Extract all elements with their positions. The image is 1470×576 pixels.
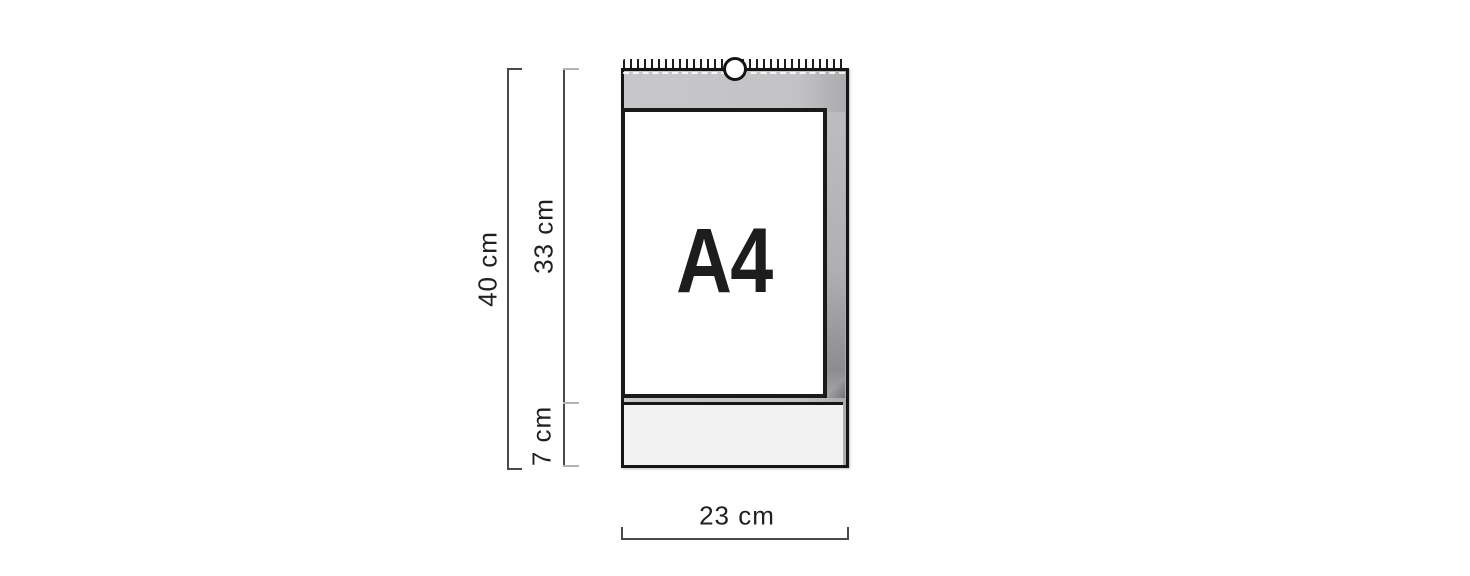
dim-total-height-label: 40 cm — [473, 231, 504, 307]
dim-total-height-tick-bottom — [507, 468, 522, 470]
dim-width-label: 23 cm — [699, 501, 775, 532]
dim-total-height-line — [507, 68, 509, 470]
footer-strip — [624, 402, 843, 465]
dim-width-line — [621, 538, 849, 540]
calendar-size-diagram: A4 40 cm 33 cm 7 cm 23 cm — [0, 0, 1470, 576]
page-size-label: A4 — [676, 215, 771, 307]
dim-inner-tick-middle — [563, 402, 579, 404]
dim-inner-tick-bottom — [563, 465, 579, 467]
dim-footer-height-label: 7 cm — [527, 406, 558, 466]
dim-width-tick-right — [847, 527, 849, 540]
dim-page-height-label: 33 cm — [529, 198, 560, 274]
hanger-hook-icon — [723, 57, 747, 81]
a4-page: A4 — [621, 108, 827, 398]
dim-width-tick-left — [621, 527, 623, 540]
dim-total-height-tick-top — [507, 68, 522, 70]
page-shadow — [826, 112, 845, 398]
dim-inner-height-line — [563, 68, 565, 467]
dim-inner-tick-top — [563, 68, 579, 70]
